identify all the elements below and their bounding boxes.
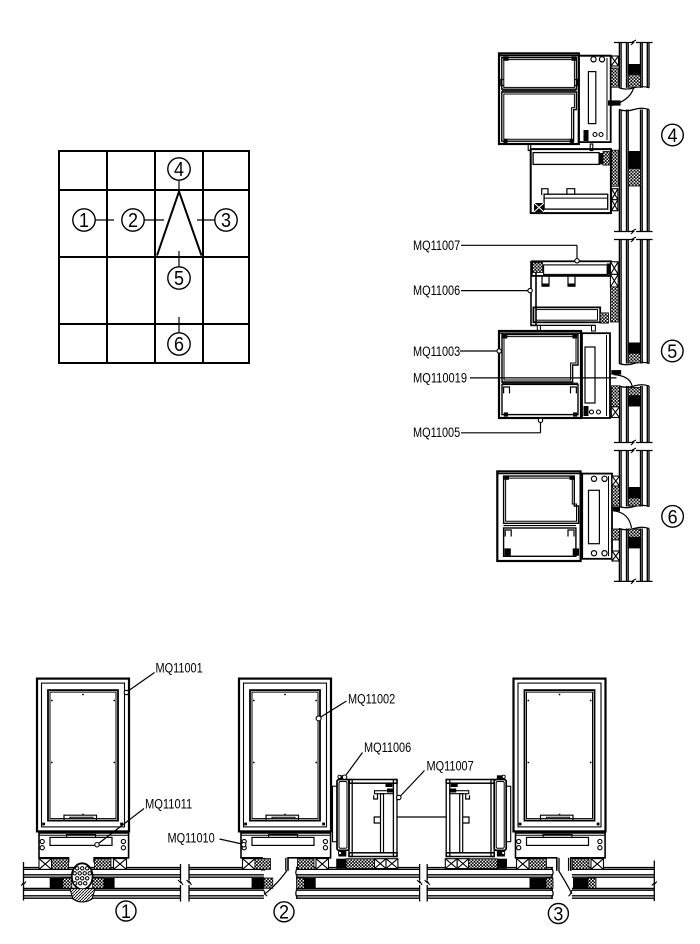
- svg-text:MQ11006: MQ11006: [364, 740, 411, 755]
- svg-text:MQ11005: MQ11005: [413, 425, 460, 440]
- svg-text:5: 5: [667, 342, 677, 363]
- svg-text:4: 4: [668, 126, 678, 147]
- svg-text:MQ11006: MQ11006: [413, 283, 460, 298]
- svg-text:MQ11007: MQ11007: [427, 759, 474, 774]
- svg-text:MQ110019: MQ110019: [413, 370, 467, 385]
- svg-text:6: 6: [174, 334, 184, 356]
- svg-text:MQ11002: MQ11002: [348, 692, 395, 707]
- svg-text:MQ11001: MQ11001: [156, 661, 203, 676]
- svg-text:1: 1: [79, 210, 89, 232]
- svg-text:2: 2: [279, 903, 289, 924]
- svg-text:4: 4: [174, 159, 184, 181]
- svg-text:MQ11003: MQ11003: [413, 344, 460, 359]
- svg-text:MQ11010: MQ11010: [168, 831, 215, 846]
- svg-text:3: 3: [221, 210, 231, 232]
- svg-text:2: 2: [128, 210, 138, 232]
- svg-text:MQ11007: MQ11007: [413, 238, 460, 253]
- svg-text:3: 3: [553, 904, 563, 925]
- svg-text:6: 6: [668, 507, 678, 528]
- svg-text:MQ11011: MQ11011: [145, 797, 192, 812]
- svg-text:5: 5: [174, 268, 184, 290]
- svg-text:1: 1: [121, 902, 131, 923]
